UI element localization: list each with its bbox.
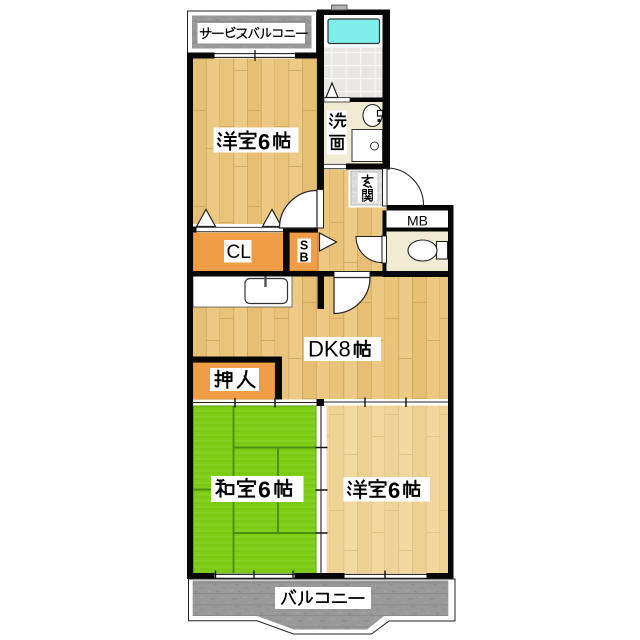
svg-text:CL: CL	[227, 242, 251, 263]
svg-text:MB: MB	[407, 213, 428, 229]
svg-text:6: 6	[258, 477, 271, 503]
svg-text:DK8: DK8	[308, 337, 351, 362]
svg-text:6: 6	[388, 478, 400, 503]
svg-text:6: 6	[258, 130, 270, 155]
svg-text:B: B	[299, 251, 308, 265]
